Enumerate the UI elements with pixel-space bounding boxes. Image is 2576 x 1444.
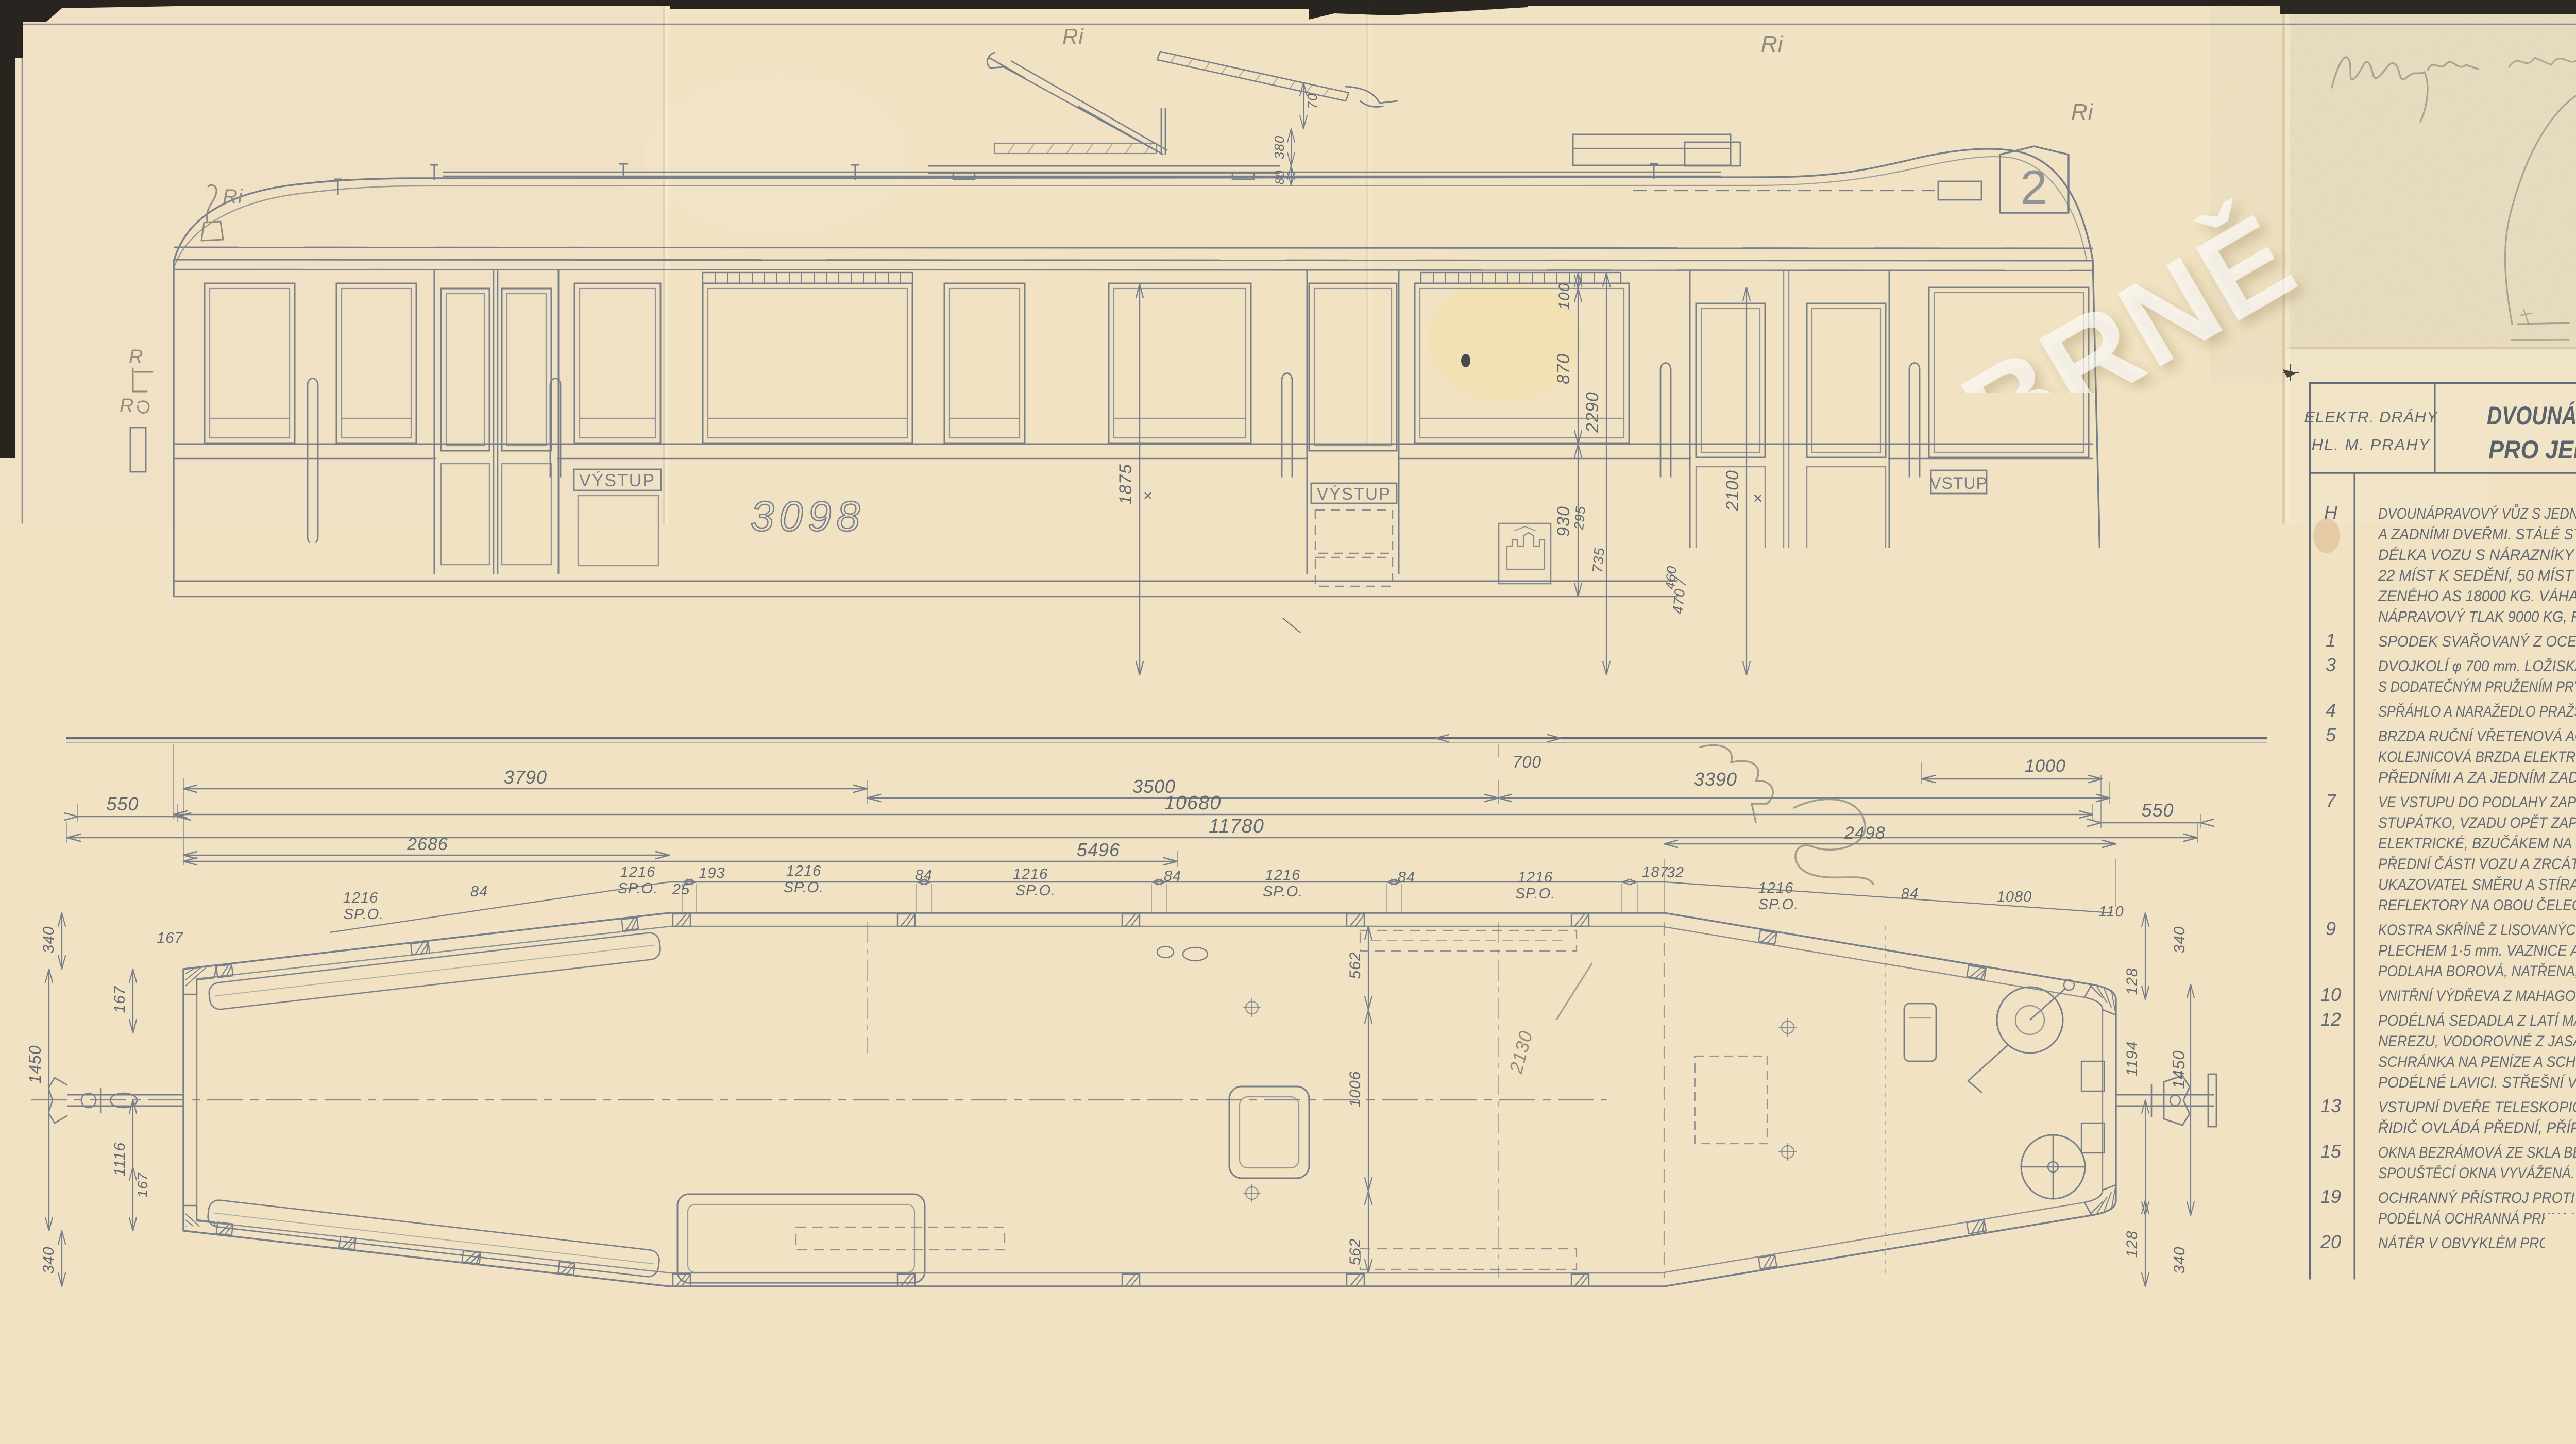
- svg-text:4: 4: [2326, 700, 2336, 721]
- svg-text:84: 84: [1901, 886, 1919, 902]
- svg-text:930: 930: [1554, 506, 1573, 537]
- svg-text:3790: 3790: [504, 767, 547, 788]
- svg-text:PŘEDNÍ ČÁSTI VOZU A ZRCÁTKO U: PŘEDNÍ ČÁSTI VOZU A ZRCÁTKO U PRŮVODČÍHO…: [2378, 854, 2576, 873]
- svg-text:ŘIDIČ OVLÁDÁ PŘEDNÍ, PŘÍPADNĚ: ŘIDIČ OVLÁDÁ PŘEDNÍ, PŘÍPADNĚ I STŘEDNÍ …: [2378, 1118, 2576, 1136]
- svg-text:SP.O.: SP.O.: [1942, 1276, 1982, 1293]
- svg-text:VSTUPNÍ DVEŘE TELESKOPICKÉ, OB: VSTUPNÍ DVEŘE TELESKOPICKÉ, OBOJE VÝSTUP…: [2378, 1098, 2576, 1116]
- svg-text:137: 137: [281, 1304, 308, 1320]
- svg-text:1: 1: [2326, 630, 2336, 651]
- svg-text:471: 471: [1345, 1338, 1371, 1354]
- svg-text:84: 84: [916, 1330, 934, 1347]
- svg-text:340: 340: [2171, 1246, 2188, 1273]
- svg-text:PŘEDNÍMI A ZA JEDNÍM ZADNÍM KO: PŘEDNÍMI A ZA JEDNÍM ZADNÍM KOLEM. RUČNÍ…: [2378, 769, 2576, 786]
- svg-text:Ri: Ri: [1062, 24, 1084, 48]
- svg-text:SP.O.: SP.O.: [1758, 896, 1799, 913]
- svg-text:PODÉLNÁ SEDADLA Z LATÍ MAHAGON: PODÉLNÁ SEDADLA Z LATÍ MAHAGONOVÝCH A JA…: [2378, 1012, 2576, 1029]
- svg-text:SPODEK SVAŘOVANÝ Z OCELI ST 42: SPODEK SVAŘOVANÝ Z OCELI ST 42, PODŘADNÉ…: [2378, 633, 2576, 650]
- svg-text:550: 550: [106, 793, 139, 814]
- svg-text:SP.O.: SP.O.: [1515, 886, 1556, 902]
- svg-text:84: 84: [470, 884, 488, 900]
- svg-text:Ri: Ri: [223, 185, 243, 208]
- svg-text:3: 3: [2326, 654, 2336, 675]
- svg-text:1000: 1000: [2025, 756, 2066, 776]
- svg-text:STUPÁTKO, VZADU OPĚT ZAPUŠTĚNÝ: STUPÁTKO, VZADU OPĚT ZAPUŠTĚNÝ PEVNÝ SCH…: [2378, 813, 2576, 831]
- svg-text:471: 471: [972, 1332, 998, 1348]
- svg-text:84: 84: [1398, 869, 1415, 886]
- svg-text:340: 340: [40, 1246, 57, 1273]
- svg-text:1116: 1116: [111, 1142, 128, 1176]
- svg-text:295: 295: [1571, 505, 1588, 531]
- svg-text:PODÉLNÁ OCHRANNÁ PRKNA VÝŠKOVĚ: PODÉLNÁ OCHRANNÁ PRKNA VÝŠKOVĚ PŘESTAVIT…: [2378, 1210, 2576, 1227]
- svg-text:1216: 1216: [620, 864, 656, 880]
- svg-text:340: 340: [2171, 926, 2188, 953]
- svg-text:1216: 1216: [343, 890, 379, 906]
- svg-text:REFLEKTORY NA OBOU ČELECH SKŘÍ: REFLEKTORY NA OBOU ČELECH SKŘÍNĚ, NOVĚJŠ…: [2378, 896, 2576, 914]
- svg-text:1080: 1080: [1997, 889, 2032, 905]
- svg-text:SPŘÁHLO A NARAŽEDLO PRAŽSKÉHO: SPŘÁHLO A NARAŽEDLO PRAŽSKÉHO VZORU.: [2378, 703, 2576, 720]
- svg-text:187: 187: [1691, 1336, 1718, 1352]
- svg-text:1216: 1216: [1518, 869, 1553, 886]
- svg-text:DVOUNÁPRAVOVÝ MOTOROVÝ VŮZ: DVOUNÁPRAVOVÝ MOTOROVÝ VŮZ: [2487, 399, 2576, 430]
- svg-text:80: 80: [1273, 170, 1287, 185]
- svg-text:1875: 1875: [1116, 464, 1136, 505]
- svg-text:VNITŘNÍ VÝDŘEVA Z MAHAGONOVÝCH: VNITŘNÍ VÝDŘEVA Z MAHAGONOVÝCH PŘEKLIŽEK…: [2378, 987, 2576, 1005]
- svg-text:3390: 3390: [1694, 769, 1737, 790]
- svg-text:2: 2: [2020, 160, 2047, 214]
- svg-text:110: 110: [2051, 1267, 2076, 1283]
- svg-text:R: R: [129, 346, 143, 368]
- svg-text:193: 193: [681, 1342, 707, 1358]
- svg-text:9: 9: [2326, 918, 2336, 939]
- svg-text:22 MÍST K SEDĚNÍ, 50 MÍST K ST: 22 MÍST K SEDĚNÍ, 50 MÍST K STÁNÍ. VÁHA …: [2378, 567, 2576, 584]
- svg-text:12: 12: [2320, 1009, 2341, 1030]
- svg-text:20: 20: [2320, 1231, 2341, 1252]
- svg-text:1450: 1450: [2170, 1050, 2188, 1089]
- svg-text:VE VSTUPU DO PODLAHY ZAPUŠTĚNÝ: VE VSTUPU DO PODLAHY ZAPUŠTĚNÝ SCHOD, VE…: [2378, 793, 2576, 811]
- svg-text:550: 550: [32, 670, 52, 701]
- svg-text:NEREZU, VODOROVNÉ Z JASANU, DO: NEREZU, VODOROVNÉ Z JASANU, DOSAŽITELNÉ,…: [2378, 1033, 2576, 1050]
- svg-text:DVOUNÁPRAVOVÝ VŮZ S JEDNODUCHÝ: DVOUNÁPRAVOVÝ VŮZ S JEDNODUCHÝM ZÁVĚSEM …: [2378, 504, 2576, 522]
- svg-text:BRZDA RUČNÍ VŘETENOVÁ ACKLEYOV: BRZDA RUČNÍ VŘETENOVÁ ACKLEYOVA, ŠPALÍKO…: [2378, 727, 2576, 745]
- svg-text:70: 70: [1304, 93, 1320, 109]
- svg-text:84: 84: [915, 867, 933, 884]
- svg-text:1300: 1300: [427, 1304, 462, 1320]
- svg-text:340: 340: [40, 926, 57, 953]
- svg-text:187: 187: [1642, 864, 1669, 880]
- svg-text:110: 110: [2098, 904, 2124, 920]
- svg-text:84: 84: [1407, 1339, 1425, 1356]
- svg-text:SCHRÁNKA NA PENÍZE A SCHRÁNKA: SCHRÁNKA NA PENÍZE A SCHRÁNKA NA LÍSTKY …: [2378, 1052, 2576, 1071]
- svg-text:PODÉLNÉ LAVICI. STŘEŠNÍ VĚTRA: PODÉLNÉ LAVICI. STŘEŠNÍ VĚTRAČ NABÍRACÍ,…: [2378, 1074, 2576, 1091]
- svg-text:87: 87: [1899, 1300, 1917, 1317]
- svg-text:2498: 2498: [1838, 1385, 1879, 1404]
- svg-text:1216: 1216: [1013, 866, 1048, 882]
- svg-text:R·: R·: [120, 395, 141, 417]
- svg-text:13: 13: [2320, 1095, 2341, 1116]
- svg-text:10: 10: [2320, 984, 2341, 1005]
- svg-text:SP.O.: SP.O.: [618, 880, 658, 897]
- svg-text:DÉLKA VOZU S NÁRAZNÍKY 11780,: DÉLKA VOZU S NÁRAZNÍKY 11780, DÉLKA SKŘÍ…: [2378, 546, 2576, 564]
- svg-text:1216: 1216: [1758, 880, 1794, 896]
- svg-text:633: 633: [588, 1351, 615, 1368]
- svg-text:ELEKTRICKÉ, BZUČÁKEM NA PROUD: ELEKTRICKÉ, BZUČÁKEM NA PROUD Z BATERIE.…: [2378, 835, 2576, 852]
- svg-text:KOLEJNICOVÁ BRZDA ELEKTROMAGNE: KOLEJNICOVÁ BRZDA ELEKTROMAGNETICKÁ. MEC…: [2378, 748, 2576, 766]
- svg-text:KOSTRA SKŘÍNĚ Z LISOVANÝCH OCE: KOSTRA SKŘÍNĚ Z LISOVANÝCH OCELOVÝCH SLO…: [2378, 920, 2576, 939]
- svg-text:167: 167: [157, 930, 183, 946]
- svg-text:5: 5: [2326, 724, 2336, 745]
- svg-text:VÝSTUP: VÝSTUP: [579, 471, 655, 490]
- svg-text:1216: 1216: [1507, 1335, 1543, 1352]
- svg-text:2095: 2095: [1892, 1351, 1931, 1370]
- svg-text:404 – 17.90: 404 – 17.90: [2308, 1409, 2494, 1444]
- svg-text:562: 562: [1347, 952, 1364, 979]
- svg-text:VÝSTUP: VÝSTUP: [1317, 484, 1391, 503]
- svg-text:128: 128: [2124, 967, 2141, 995]
- svg-text:ZENÉHO AS 18000 KG. VÁHA OBSA: ZENÉHO AS 18000 KG. VÁHA OBSAZENÉHO VOZU…: [2378, 588, 2576, 605]
- svg-text:NÁTĚR V OBVYKLÉM PROVEDENÍ, NÁ: NÁTĚR V OBVYKLÉM PROVEDENÍ, NÁPISY A MĚS…: [2378, 1235, 2576, 1252]
- svg-text:×: ×: [1143, 487, 1153, 504]
- svg-text:2686: 2686: [406, 835, 448, 854]
- svg-text:SPOUŠTĚCÍ OKNA VYVÁŽENÁ.: SPOUŠTĚCÍ OKNA VYVÁŽENÁ.: [2378, 1164, 2574, 1182]
- svg-text:SP.O.: SP.O.: [344, 906, 384, 923]
- svg-text:128: 128: [2124, 1230, 2141, 1258]
- svg-text:32: 32: [1727, 1338, 1745, 1354]
- svg-text:1006: 1006: [1347, 1071, 1364, 1108]
- svg-text:A ZADNÍMI DVEŘMI. STÁLÉ STANO: A ZADNÍMI DVEŘMI. STÁLÉ STANOVIŠTĚ PRŮVO…: [2377, 524, 2576, 543]
- svg-text:15: 15: [2320, 1141, 2342, 1162]
- svg-text:PLECHEM 1·5 mm. VAZNICE A KRU: PLECHEM 1·5 mm. VAZNICE A KRUŽINY STŘECH…: [2378, 941, 2576, 959]
- svg-text:1216: 1216: [838, 1331, 873, 1347]
- svg-text:1300: 1300: [1163, 1335, 1199, 1351]
- svg-text:1194: 1194: [2124, 1041, 2141, 1077]
- svg-text:550: 550: [2141, 800, 2174, 821]
- svg-text:OCHRANNÝ PŘÍSTROJ PROTI PŘEJET: OCHRANNÝ PŘÍSTROJ PROTI PŘEJETÍ SOUSTAVY…: [2378, 1190, 2576, 1207]
- svg-text:32: 32: [1667, 864, 1684, 881]
- svg-text:OKNA BEZRÁMOVÁ ZE SKLA BEZPEČN: OKNA BEZRÁMOVÁ ZE SKLA BEZPEČNOSTNÍHO, S…: [2378, 1144, 2576, 1161]
- svg-text:193: 193: [699, 865, 725, 881]
- svg-text:DVOJKOLÍ φ 700 mm. LOŽISKA V: DVOJKOLÍ φ 700 mm. LOŽISKA VÁLEČKOVÁ SKF…: [2378, 657, 2576, 675]
- svg-text:NÁPRAVOVÝ TLAK 9000 KG, ROZVOR: NÁPRAVOVÝ TLAK 9000 KG, ROZVOR 3500 mm.: [2378, 608, 2576, 625]
- svg-text:167: 167: [134, 1172, 150, 1198]
- svg-text:25: 25: [672, 881, 690, 898]
- svg-text:S DODATEČNÝM PRUŽENÍM PRYŽOVÝM: S DODATEČNÝM PRUŽENÍM PRYŽOVÝM.: [2378, 678, 2576, 695]
- svg-text:310: 310: [1294, 530, 1312, 558]
- svg-text:UKAZOVATEL SMĚRU A STÍRAČ ČELN: UKAZOVATEL SMĚRU A STÍRAČ ČELNÍHO OKNA E…: [2378, 876, 2576, 893]
- svg-text:167: 167: [111, 986, 128, 1013]
- svg-text:993: 993: [1948, 1292, 1975, 1308]
- svg-text:137: 137: [1288, 1337, 1315, 1353]
- svg-text:PRO JEDNOSMĚRNÝ PROVOZ: PRO JEDNOSMĚRNÝ PROVOZ: [2488, 435, 2576, 464]
- svg-text:7: 7: [2326, 790, 2337, 811]
- svg-text:2101: 2101: [1070, 1353, 1109, 1372]
- svg-text:19: 19: [2320, 1186, 2341, 1207]
- svg-text:1450: 1450: [26, 1045, 44, 1083]
- svg-text:Ri: Ri: [2071, 99, 2094, 125]
- svg-text:167: 167: [157, 1307, 183, 1323]
- svg-text:PODLAHA BOROVÁ, NATŘENA, KRYTA: PODLAHA BOROVÁ, NATŘENA, KRYTA DUBOVÝMI …: [2378, 962, 2576, 980]
- svg-text:3098: 3098: [751, 493, 865, 540]
- svg-text:471: 471: [205, 1299, 231, 1315]
- svg-text:137: 137: [1037, 1333, 1063, 1349]
- svg-text:870: 870: [1554, 353, 1573, 384]
- svg-text:380: 380: [1272, 135, 1287, 159]
- svg-text:100: 100: [1556, 282, 1573, 310]
- svg-text:562: 562: [1347, 1238, 1364, 1265]
- svg-text:775: 775: [212, 1326, 239, 1343]
- svg-text:1050: 1050: [899, 594, 942, 615]
- svg-text:ELEKTR. DRÁHY: ELEKTR. DRÁHY: [2304, 408, 2438, 426]
- svg-text:2290: 2290: [1583, 392, 1602, 433]
- svg-text:1300: 1300: [1856, 1333, 1891, 1350]
- svg-text:H: H: [2324, 502, 2338, 523]
- svg-text:HL. M. PRAHY: HL. M. PRAHY: [2312, 436, 2431, 454]
- svg-text:SP.O.: SP.O.: [784, 879, 824, 896]
- svg-text:Ri: Ri: [1761, 31, 1784, 57]
- svg-text:Ri: Ri: [2139, 539, 2160, 562]
- svg-text:1216: 1216: [786, 863, 822, 879]
